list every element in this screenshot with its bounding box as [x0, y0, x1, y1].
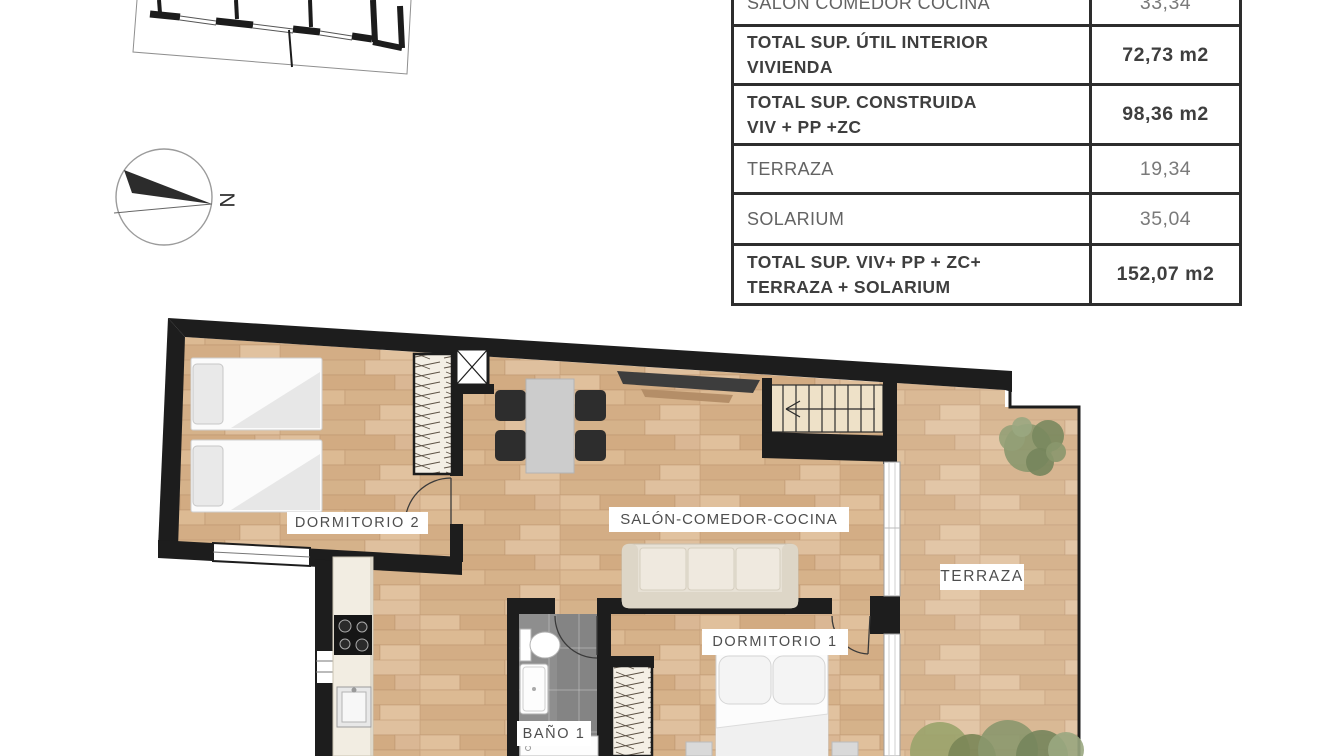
shower-tray — [520, 664, 548, 714]
bed-single-1 — [191, 358, 322, 430]
row-label: SOLARIUM — [734, 195, 1089, 243]
wall-pier — [870, 596, 900, 634]
key-plan — [133, 0, 411, 74]
table-row-terraza: TERRAZA 19,34 — [731, 143, 1242, 195]
nightstand-left — [686, 742, 712, 756]
sliding-door-dorm1-terraza — [884, 634, 900, 756]
row-label: TERRAZA — [734, 146, 1089, 192]
ventilation-shaft — [456, 349, 488, 385]
wall-stairs-left — [762, 378, 772, 434]
row-label: TOTAL SUP. CONSTRUIDAVIV + PP +ZC — [734, 86, 1089, 143]
row-value: 33,34 — [1089, 0, 1239, 24]
row-value: 72,73 m2 — [1089, 27, 1239, 83]
sliding-door-salon-terraza — [884, 462, 900, 596]
wall-dorm2-right-lower — [450, 524, 463, 562]
table-row-total-construida: TOTAL SUP. CONSTRUIDAVIV + PP +ZC 98,36 … — [731, 83, 1242, 146]
row-label: SALÓN COMEDOR COCINA — [734, 0, 1089, 24]
label-dormitorio-2: DORMITORIO 2 — [287, 512, 428, 534]
wall-bano-dorm1-divider — [597, 614, 611, 756]
nightstand-right — [832, 742, 858, 756]
bed-single-2 — [191, 440, 322, 512]
compass-north-label: N — [215, 192, 238, 207]
label-salon-comedor-cocina: SALÓN-COMEDOR-COCINA — [609, 507, 849, 532]
compass-needle — [124, 170, 212, 204]
row-value: 35,04 — [1089, 195, 1239, 243]
kitchen-sink — [337, 687, 371, 727]
table-row-solarium: SOLARIUM 35,04 — [731, 192, 1242, 246]
cooktop — [334, 615, 372, 655]
key-plan-windows — [180, 16, 352, 40]
area-table: SALÓN COMEDOR COCINA 33,34 TOTAL SUP. ÚT… — [731, 0, 1242, 306]
row-value: 19,34 — [1089, 146, 1239, 192]
wardrobe-dorm1 — [612, 666, 652, 756]
key-plan-walls — [150, 14, 372, 39]
north-compass: N — [114, 149, 238, 245]
row-value: 98,36 m2 — [1089, 86, 1239, 143]
label-dormitorio-1: DORMITORIO 1 — [702, 629, 848, 655]
table-row-total-util: TOTAL SUP. ÚTIL INTERIORVIVIENDA 72,73 m… — [731, 24, 1242, 86]
window-kitchen — [316, 650, 335, 684]
table-row-salon: SALÓN COMEDOR COCINA 33,34 — [731, 0, 1242, 27]
row-label: TOTAL SUP. ÚTIL INTERIORVIVIENDA — [734, 27, 1089, 83]
wall-stairs-bottom — [762, 432, 897, 462]
label-bano-1: BAÑO 1 — [517, 721, 591, 746]
wardrobe-dorm2 — [414, 354, 452, 474]
table-row-total-general: TOTAL SUP. VIV+ PP + ZC+TERRAZA + SOLARI… — [731, 243, 1242, 306]
label-terraza: TERRAZA — [940, 564, 1024, 590]
row-label: TOTAL SUP. VIV+ PP + ZC+TERRAZA + SOLARI… — [734, 246, 1089, 303]
row-value: 152,07 m2 — [1089, 246, 1239, 303]
stairs — [770, 385, 883, 432]
sofa — [622, 544, 798, 608]
floor-plan-page: N — [0, 0, 1319, 756]
